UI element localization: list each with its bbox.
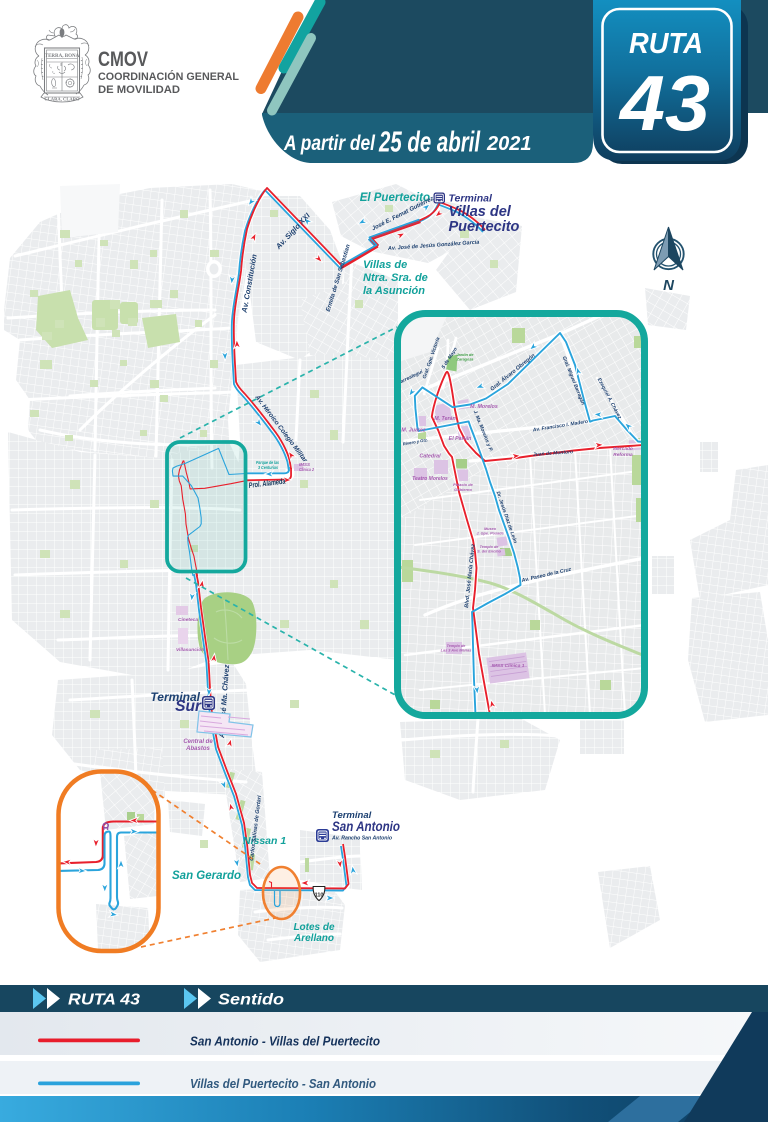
svg-text:N: N	[663, 277, 675, 294]
svg-text:M. Morelos: M. Morelos	[470, 404, 498, 410]
svg-text:Sur: Sur	[175, 698, 202, 715]
svg-text:Arellano: Arellano	[293, 933, 334, 944]
svg-text:Gobierno: Gobierno	[454, 487, 472, 492]
svg-text:25 de abril: 25 de abril	[378, 127, 480, 159]
svg-text:Las 3 Ave Marías: Las 3 Ave Marías	[441, 649, 472, 653]
svg-text:Villas de: Villas de	[363, 259, 407, 271]
svg-text:RUTA: RUTA	[629, 28, 703, 60]
svg-text:Puertecito: Puertecito	[449, 219, 520, 235]
svg-text:M. Juárez: M. Juárez	[401, 428, 425, 434]
svg-text:DE MOVILIDAD: DE MOVILIDAD	[98, 84, 180, 96]
svg-text:Terminal: Terminal	[449, 193, 493, 205]
svg-text:El Parián: El Parián	[449, 436, 472, 442]
svg-text:Templo de: Templo de	[480, 545, 499, 549]
svg-text:CLARA, CLARO: CLARA, CLARO	[44, 97, 80, 102]
svg-text:Abastos: Abastos	[185, 746, 210, 752]
svg-text:San Gerardo: San Gerardo	[172, 870, 241, 882]
svg-text:Villas del Puertecito - San An: Villas del Puertecito - San Antonio	[190, 1077, 376, 1091]
svg-text:Nissan 1: Nissan 1	[243, 835, 286, 847]
svg-text:Zaragoza: Zaragoza	[456, 358, 474, 362]
svg-text:Villas del: Villas del	[449, 204, 512, 220]
svg-text:Clínica 2: Clínica 2	[299, 467, 314, 472]
svg-text:Mercado: Mercado	[613, 446, 633, 452]
svg-text:San Antonio: San Antonio	[332, 818, 400, 834]
svg-text:Av. Rancho San Antonio: Av. Rancho San Antonio	[331, 836, 392, 842]
svg-text:TERRA, BONA: TERRA, BONA	[45, 54, 80, 59]
svg-text:Central de: Central de	[183, 739, 213, 745]
svg-text:S. del Encino: S. del Encino	[477, 550, 502, 554]
svg-text:la Asunción: la Asunción	[363, 285, 425, 297]
svg-text:Templo de: Templo de	[447, 644, 466, 648]
svg-text:San Antonio - Villas del Puert: San Antonio - Villas del Puertecito	[190, 1035, 380, 1049]
svg-text:Sentido: Sentido	[218, 992, 284, 1009]
svg-text:Jardín de: Jardín de	[457, 353, 474, 357]
svg-text:Lotes de: Lotes de	[293, 922, 335, 933]
svg-text:M. Terán: M. Terán	[434, 416, 456, 422]
svg-text:CMOV: CMOV	[98, 48, 148, 71]
svg-text:Villasunción: Villasunción	[176, 647, 204, 653]
svg-text:RUTA 43: RUTA 43	[68, 992, 140, 1009]
svg-text:COORDINACIÓN GENERAL: COORDINACIÓN GENERAL	[98, 70, 239, 83]
svg-text:J. Gpe. Posada: J. Gpe. Posada	[476, 532, 503, 536]
svg-text:Teatro Morelos: Teatro Morelos	[412, 476, 448, 482]
svg-text:IMSS Clínica 1: IMSS Clínica 1	[492, 663, 525, 669]
svg-text:Catedral: Catedral	[419, 454, 441, 460]
svg-text:Reforma: Reforma	[613, 452, 633, 458]
svg-text:2021: 2021	[486, 133, 532, 155]
svg-text:A partir del: A partir del	[283, 132, 376, 155]
svg-text:43: 43	[618, 59, 710, 147]
svg-text:110: 110	[315, 893, 324, 899]
svg-text:Ntra. Sra. de: Ntra. Sra. de	[363, 272, 428, 284]
svg-text:3 Centurias: 3 Centurias	[258, 465, 278, 470]
svg-text:Cineteca: Cineteca	[178, 617, 198, 623]
svg-text:Museo: Museo	[484, 527, 497, 531]
